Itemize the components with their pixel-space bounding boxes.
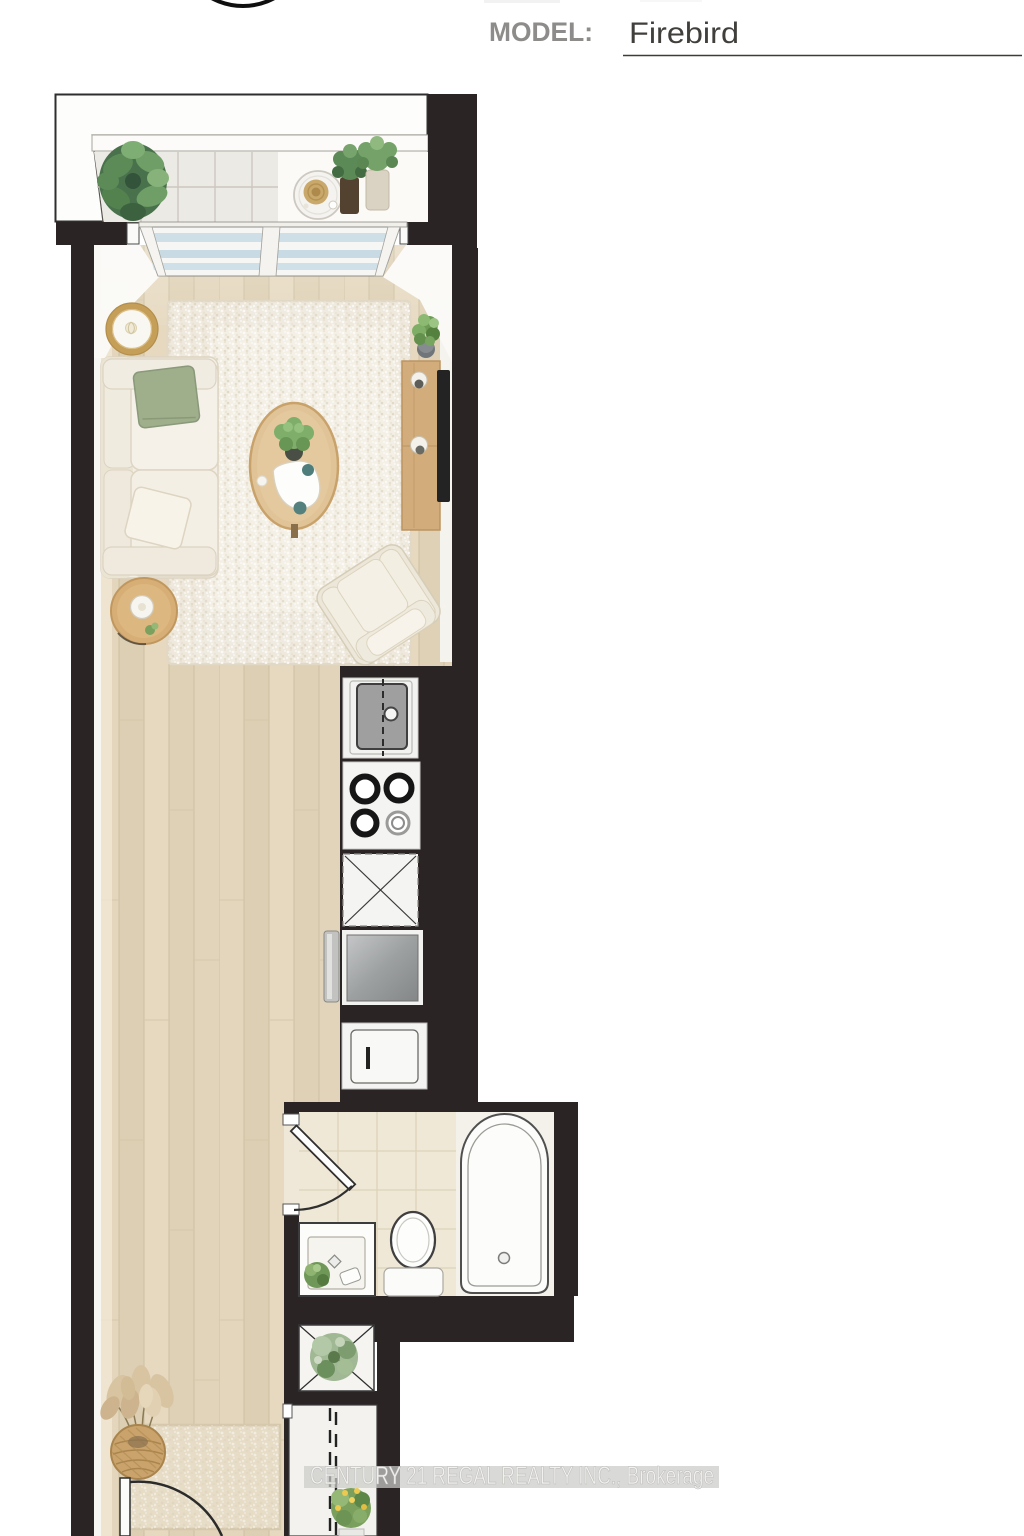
svg-text:MODEL:: MODEL:: [489, 17, 593, 47]
svg-text:Firebird: Firebird: [629, 17, 739, 50]
svg-text:CENTURY 21 REGAL REALTY INC.,: CENTURY 21 REGAL REALTY INC., Brokerage: [310, 1462, 714, 1490]
